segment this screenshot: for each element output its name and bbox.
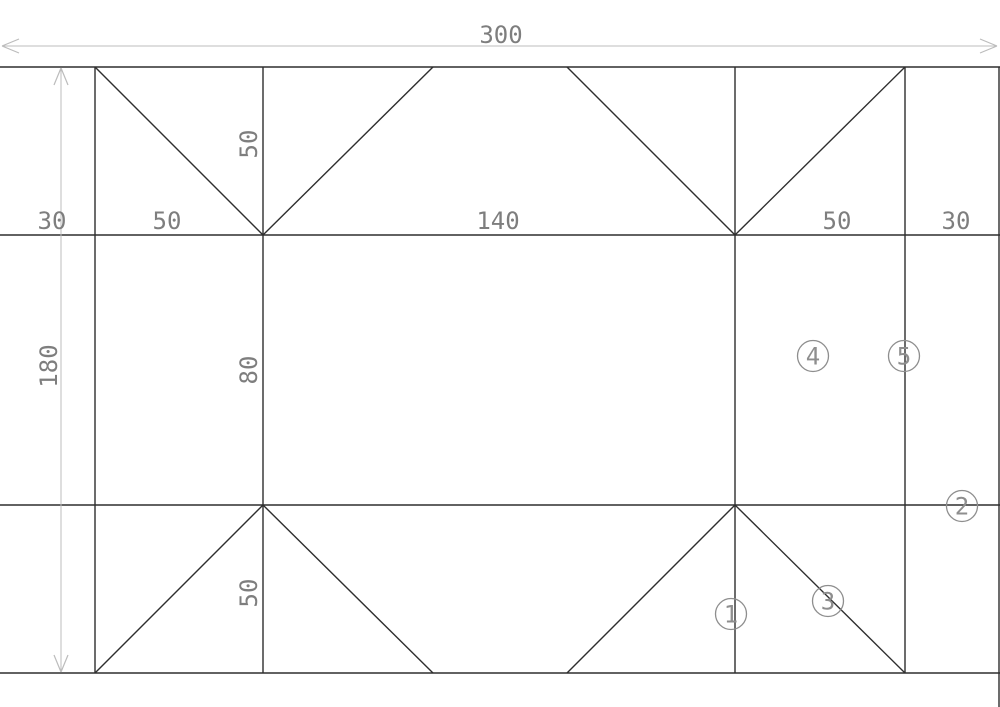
dimension-label: 300 [479, 21, 522, 49]
dimension-arrow-icon [2, 39, 19, 46]
cad-drawing-canvas: 30030501405030180508050 12345 [0, 0, 1000, 707]
balloon-number: 4 [806, 343, 820, 371]
geometry-line [263, 67, 433, 235]
dimension-arrow-icon [54, 68, 61, 85]
dimension-label: 180 [35, 344, 63, 387]
dimension-label: 30 [942, 207, 971, 235]
dimension-arrow-icon [980, 39, 997, 46]
dimension-label: 50 [235, 579, 263, 608]
geometry-line [263, 505, 433, 673]
dimension-label: 50 [823, 207, 852, 235]
dimension-lines [2, 39, 997, 672]
dimension-label: 50 [153, 207, 182, 235]
balloon-number: 5 [897, 343, 911, 371]
dimension-label: 80 [235, 356, 263, 385]
dimension-labels: 30030501405030180508050 [35, 21, 970, 607]
dimension-label: 30 [38, 207, 67, 235]
balloon-number: 2 [955, 493, 969, 521]
dimension-arrow-icon [54, 655, 61, 672]
dimension-arrow-icon [61, 68, 68, 85]
dimension-arrow-icon [980, 46, 997, 53]
balloon-callouts: 12345 [716, 341, 978, 630]
balloon-number: 3 [821, 588, 835, 616]
dimension-label: 140 [476, 207, 519, 235]
geometry-lines [0, 67, 1000, 707]
geometry-line [567, 505, 735, 673]
balloon-number: 1 [724, 601, 738, 629]
dimension-arrow-icon [61, 655, 68, 672]
geometry-line [567, 67, 735, 235]
drawing-svg: 30030501405030180508050 12345 [0, 0, 1000, 707]
dimension-label: 50 [235, 130, 263, 159]
dimension-arrow-icon [2, 46, 19, 53]
geometry-line [735, 67, 905, 235]
